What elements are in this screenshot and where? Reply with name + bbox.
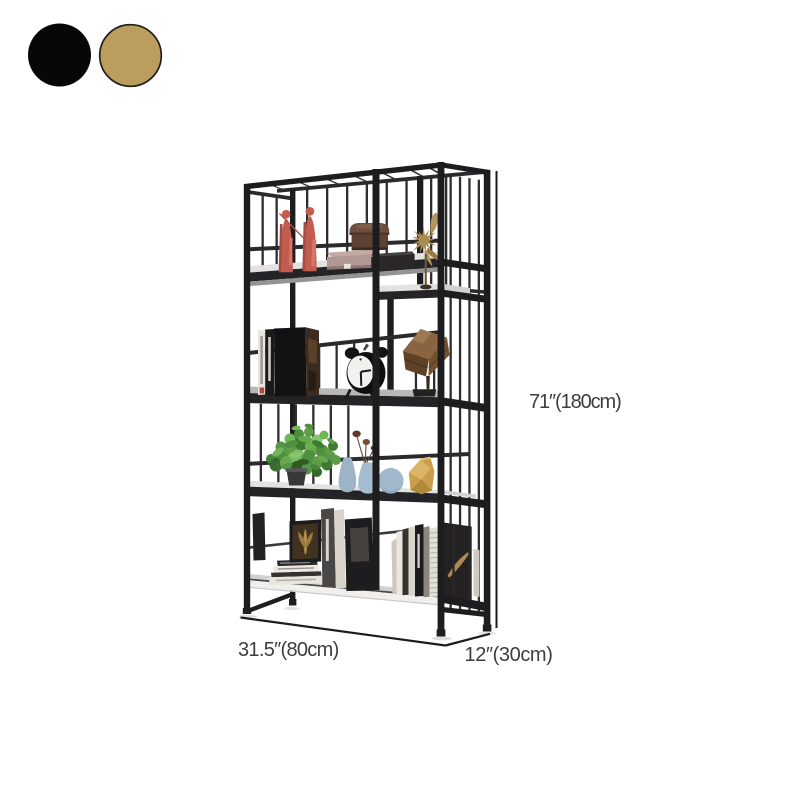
- svg-text:12″(30cm): 12″(30cm): [465, 644, 553, 666]
- svg-text:31.5″(80cm): 31.5″(80cm): [238, 639, 339, 661]
- svg-text:71″(180cm): 71″(180cm): [529, 391, 621, 413]
